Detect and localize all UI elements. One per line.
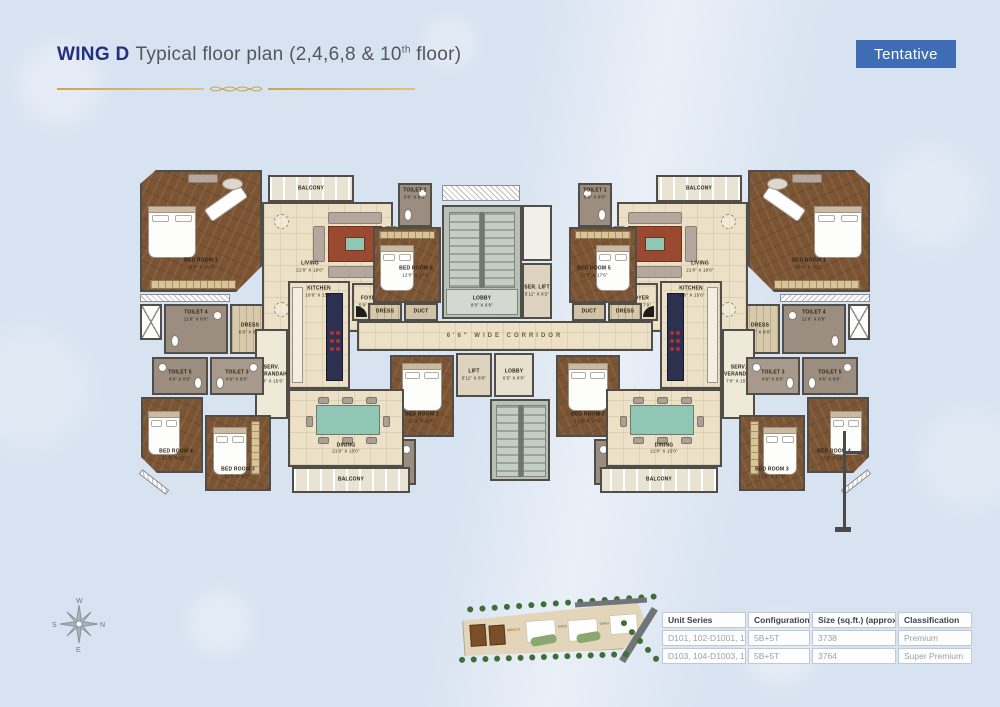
lobby-top-label: LOBBY 8'0" X 6'6" [447, 296, 517, 309]
bedroom-5: BED ROOM 5 12'0" X 17'6" [373, 227, 441, 303]
gold-divider [57, 82, 415, 96]
bedroom-1-right: BED ROOM 1 20'0" X 15'0" [748, 170, 870, 292]
staircase-bottom [490, 399, 550, 481]
dining-label-right: DINING 21'0" X 15'0" [608, 442, 720, 455]
kitchen-right: KITCHEN 10'6" X 15'6" [660, 281, 722, 389]
bedroom-4-right: BED ROOM 4 12'0" X 15'0" [807, 397, 869, 473]
dining-label: DINING 21'0" X 15'0" [290, 442, 402, 455]
row1-classification: Premium [898, 630, 972, 646]
site-wing-d-label: WING D [507, 627, 520, 632]
kitchen: KITCHEN 10'6" X 15'6" [288, 281, 350, 389]
corridor: 6'6" WIDE CORRIDOR [357, 321, 653, 351]
balcony-top: BALCONY [268, 175, 354, 202]
lift: LIFT 5'11" X 8'0" [456, 353, 492, 397]
row1-configuration: 5B+5T [748, 630, 810, 646]
site-key-plan: WING D WING C WING B [455, 592, 670, 674]
compass-e: E [76, 647, 81, 653]
toilet-5-right: TOILET 5 4'6" X 8'0" [802, 357, 858, 395]
toilet-3: TOILET 3 4'6" X 8'0" [210, 357, 264, 395]
wing-name: WING D [57, 44, 130, 65]
page-title: WING DTypical floor plan (2,4,6,8 & 10th… [57, 44, 461, 66]
col-unit-series: Unit Series [662, 612, 746, 628]
duct-label: DUCT [406, 309, 436, 316]
dress-small: DRESS [368, 303, 402, 321]
col-configuration: Configuration [748, 612, 810, 628]
balcony-bottom: BALCONY [292, 467, 410, 493]
ledge [140, 294, 230, 302]
bedroom-1-label-right: BED ROOM 1 20'0" X 15'0" [750, 258, 868, 271]
bedroom-4: BED ROOM 4 12'0" X 15'0" [141, 397, 203, 473]
bedroom-1: BED ROOM 1 20'0" X 15'0" [140, 170, 262, 292]
toilet-5: TOILET 5 4'6" X 8'0" [152, 357, 208, 395]
tentative-badge: Tentative [856, 40, 956, 68]
duct-shaft-right [848, 304, 870, 340]
balcony-bottom-right: BALCONY [600, 467, 718, 493]
row2-configuration: 5B+5T [748, 648, 810, 664]
duct-shaft [140, 304, 162, 340]
compass-icon: W N E S [50, 595, 108, 653]
shaft [522, 205, 552, 261]
toilet-4-right: TOILET 4 11'6" X 8'0" [782, 304, 846, 354]
bedroom-3-right: BED ROOM 3 11'6" X 17'6" [739, 415, 805, 491]
row1-unit-series: D101, 102-D1001, 1002 [662, 630, 746, 646]
divider-line-left [57, 88, 204, 90]
site-wing-d-block [469, 624, 486, 647]
corner-ledge [139, 469, 169, 495]
service-lift: SER. LIFT 5'11" X 8'2" [522, 263, 552, 319]
site-wing-d-block2 [488, 625, 505, 646]
unit-legend-table: Unit Series Configuration Size (sq.ft.) … [662, 612, 972, 664]
lobby-bottom-label: LOBBY 6'5" X 8'0" [496, 369, 532, 382]
compass-rose: W N E S [50, 595, 108, 658]
bedroom-5-right: BED ROOM 5 12'0" X 17'6" [569, 227, 637, 303]
balcony-top-label: BALCONY [270, 185, 352, 192]
col-classification: Classification [898, 612, 972, 628]
divider-ornament-icon [208, 82, 264, 96]
lift-label: LIFT 5'11" X 8'0" [458, 369, 490, 382]
service-lift-label: SER. LIFT 5'11" X 8'2" [524, 285, 550, 298]
row1-size: 3738 [812, 630, 896, 646]
col-size: Size (sq.ft.) (approx) [812, 612, 896, 628]
balcony-top-label-right: BALCONY [658, 185, 740, 192]
core-ledge [442, 185, 520, 201]
boundary-fin [843, 431, 846, 531]
bedroom-1-label: BED ROOM 1 20'0" X 15'0" [142, 258, 260, 271]
balcony-top-right: BALCONY [656, 175, 742, 202]
row2-classification: Super Premium [898, 648, 972, 664]
floor-plan: BED ROOM 1 20'0" X 15'0" TOILET 4 11'6" … [135, 163, 875, 543]
row2-unit-series: D103, 104-D1003, 1004 [662, 648, 746, 664]
balcony-bottom-label: BALCONY [294, 477, 408, 484]
staircase-top: LOBBY 8'0" X 6'6" [442, 205, 522, 319]
compass-s: S [52, 622, 57, 629]
divider-line-right [268, 88, 415, 90]
lobby-bottom: LOBBY 6'5" X 8'0" [494, 353, 534, 397]
row2-size: 3764 [812, 648, 896, 664]
duct-room-right: DUCT [572, 303, 606, 321]
duct-room: DUCT [404, 303, 438, 321]
duct-label-right: DUCT [574, 309, 604, 316]
page: { "header": { "wing": "WING D", "title_m… [0, 0, 1000, 707]
title-end: floor) [411, 44, 462, 65]
ledge-right [780, 294, 870, 302]
bedroom-3: BED ROOM 3 11'6" X 17'6" [205, 415, 271, 491]
unit-half-right: BED ROOM 1 20'0" X 15'0" TOILET 4 11'6" … [505, 163, 875, 543]
compass-n: N [100, 622, 105, 629]
balcony-bottom-label-right: BALCONY [602, 477, 716, 484]
dining-room: DINING 21'0" X 15'0" [288, 389, 404, 467]
title-superscript: th [402, 45, 411, 56]
toilet-1-right: TOILET 1 5'0" X 8'0" [578, 183, 612, 227]
dress-small-label: DRESS [370, 309, 400, 316]
dress-small-label-right: DRESS [610, 309, 640, 316]
toilet-1: TOILET 1 5'0" X 8'0" [398, 183, 432, 227]
boundary-fin-foot [835, 527, 851, 532]
compass-w: W [76, 598, 83, 605]
boundary-fin-tick [843, 451, 865, 454]
toilet-3-right: TOILET 3 4'6" X 8'0" [746, 357, 800, 395]
dining-room-right: DINING 21'0" X 15'0" [606, 389, 722, 467]
corridor-label: 6'6" WIDE CORRIDOR [359, 332, 651, 340]
toilet-4: TOILET 4 11'6" X 8'0" [164, 304, 228, 354]
dress-small-right: DRESS [608, 303, 642, 321]
title-text: Typical floor plan (2,4,6,8 & 10 [136, 44, 402, 65]
